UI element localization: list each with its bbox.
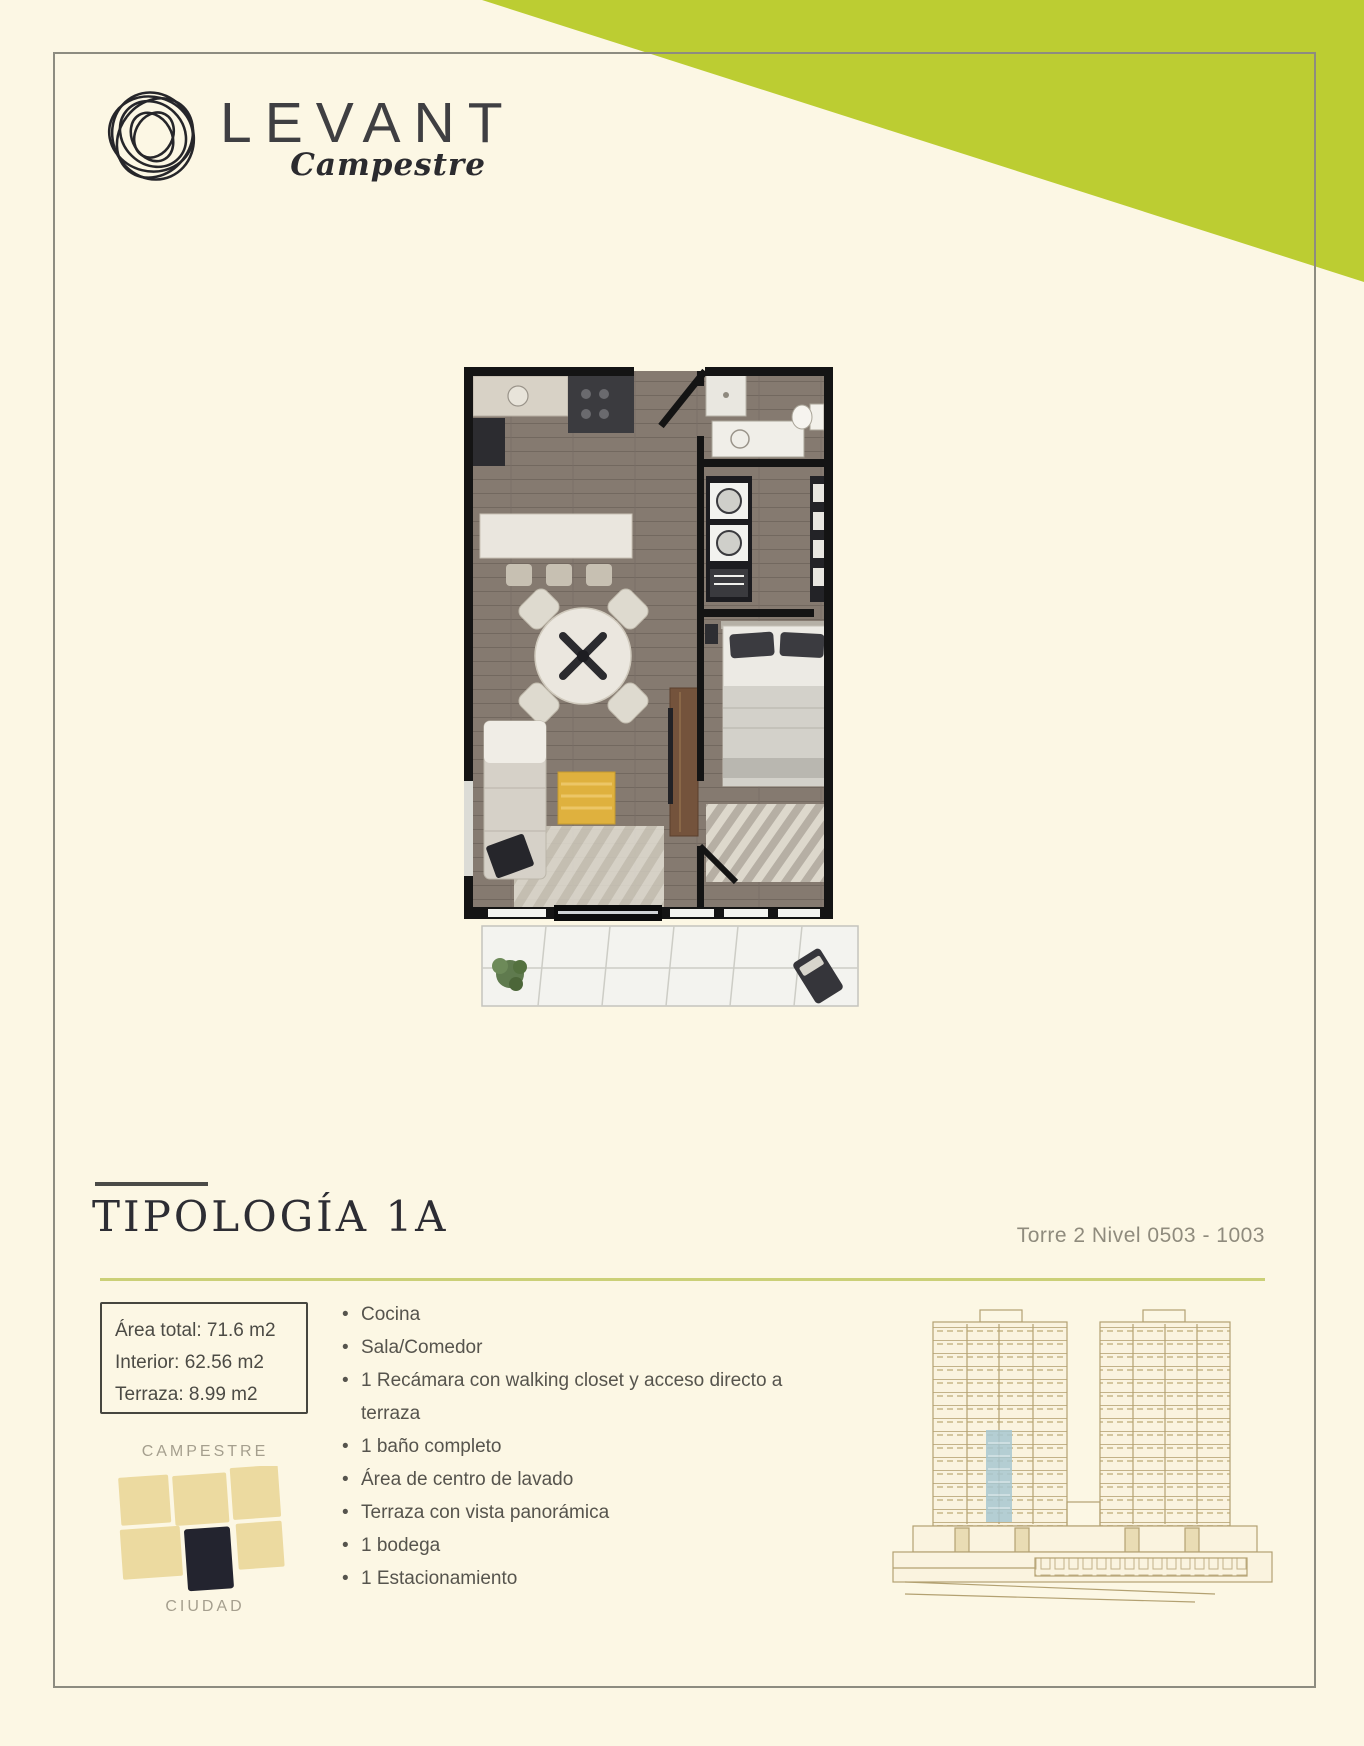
tower-level-label: Torre 2 Nivel 0503 - 1003: [900, 1224, 1265, 1248]
green-divider: [100, 1278, 1265, 1281]
title-rule: [95, 1182, 208, 1186]
window-left: [464, 781, 473, 876]
ciudad-label: CIUDAD: [110, 1598, 300, 1616]
area-interior: Interior: 62.56 m2: [115, 1347, 306, 1379]
campestre-label: CAMPESTRE: [110, 1443, 300, 1461]
feature-list: CocinaSala/Comedor1 Recámara con walking…: [342, 1298, 788, 1595]
area-terrace: Terraza: 8.99 m2: [115, 1379, 306, 1411]
feature-item: Área de centro de lavado: [342, 1463, 788, 1496]
area-summary-box: Área total: 71.6 m2 Interior: 62.56 m2 T…: [100, 1302, 308, 1414]
scribble-circle-logo-icon: [104, 84, 202, 188]
feature-item: Sala/Comedor: [342, 1331, 788, 1364]
terrace: [482, 926, 858, 1006]
location-key-map: [110, 1466, 300, 1596]
tv-console: [668, 688, 698, 836]
sofa: [484, 721, 546, 879]
accent-green-wedge: [0, 0, 1364, 292]
feature-item: Cocina: [342, 1298, 788, 1331]
bed: [705, 621, 831, 786]
area-total: Área total: 71.6 m2: [115, 1315, 306, 1347]
feature-item: Terraza con vista panorámica: [342, 1496, 788, 1529]
feature-item: 1 bodega: [342, 1529, 788, 1562]
building-elevation-image: [885, 1302, 1280, 1620]
coffee-table: [558, 772, 615, 824]
floor-plan-image: [418, 326, 860, 1010]
page-title: TIPOLOGÍA 1A: [92, 1192, 449, 1241]
highlighted-tower-block: [184, 1526, 234, 1591]
feature-item: 1 Recámara con walking closet y acceso d…: [342, 1364, 788, 1430]
brand-subtitle: Campestre: [220, 147, 486, 183]
feature-item: 1 Estacionamiento: [342, 1562, 788, 1595]
feature-item: 1 baño completo: [342, 1430, 788, 1463]
